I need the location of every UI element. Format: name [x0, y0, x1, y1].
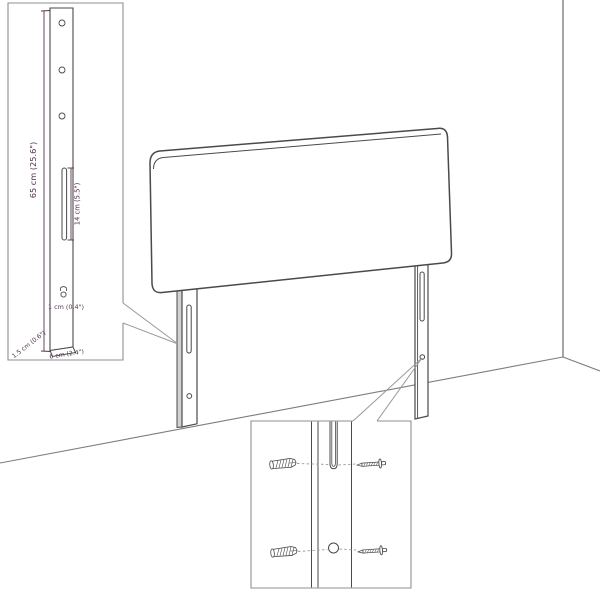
right-leg-slot: [420, 272, 424, 321]
inset2-border: [251, 421, 411, 588]
left-leg-hole: [187, 394, 192, 399]
inset1-hole-bottom: [59, 113, 65, 119]
inset1-slot: [62, 168, 67, 240]
dim-label-hole-diameter: 1 cm (0.4"): [48, 303, 84, 311]
leader-inset1-bottom: [123, 323, 178, 344]
headboard-panel-face: [150, 128, 452, 292]
left-leg-side-face: [177, 289, 182, 428]
leader-inset2-left: [353, 358, 422, 421]
inset1-small-hole: [61, 292, 66, 297]
inset1-hole-middle: [59, 67, 65, 73]
dim-label-leg-height: 65 cm (25.6"): [28, 142, 38, 199]
inset2-hole: [329, 543, 339, 553]
headboard-panel: [150, 128, 452, 292]
leader-inset1-top: [123, 303, 178, 344]
dim-label-slot-length: 14 cm (5.5"): [74, 182, 82, 225]
assembly-diagram-page: 65 cm (25.6") 14 cm (5.5") 1 cm (0.4") 1…: [0, 0, 600, 600]
dim-tick-bottom: [41, 351, 51, 352]
floor-line-right: [563, 357, 600, 371]
dim-label-leg-depth: 1.5 cm (0.6"): [11, 330, 47, 361]
inset1-hole-top: [59, 20, 65, 26]
inset-mounting-detail: [251, 421, 411, 588]
headboard-assembly-diagram: 65 cm (25.6") 14 cm (5.5") 1 cm (0.4") 1…: [0, 0, 600, 600]
inset-leg-dimension-detail: 65 cm (25.6") 14 cm (5.5") 1 cm (0.4") 1…: [8, 3, 123, 361]
left-leg-slot: [187, 305, 191, 353]
callout-leaders: [123, 303, 422, 421]
dim-tick-top: [41, 11, 50, 12]
